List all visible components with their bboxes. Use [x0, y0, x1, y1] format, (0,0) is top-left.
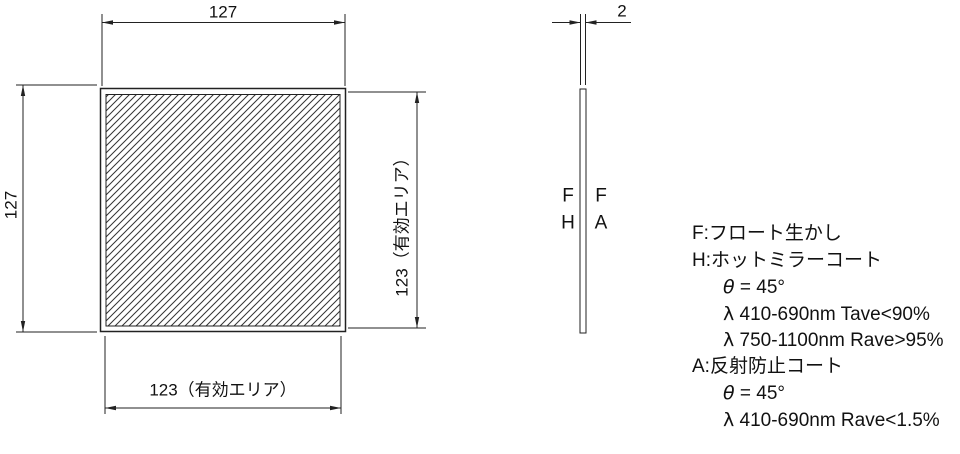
surface-label-hotmirror: H: [561, 214, 575, 233]
note-hotmirror-angle: θ = 45°: [692, 274, 944, 301]
dim-label-effective-height: 123（有効エリア）: [394, 149, 411, 296]
arrow-left-icon: [105, 406, 116, 410]
note-angle-value: = 45°: [735, 277, 785, 298]
dim-label-height: 127: [3, 191, 20, 219]
arrow-down-icon: [21, 321, 25, 332]
dim-bottom-effective-width: [105, 336, 341, 414]
technical-drawing-page: 127 127 123（有効エリア） 123（有効エリア） 2 F H F A …: [0, 0, 960, 454]
lambda-symbol: λ: [723, 409, 734, 431]
surface-label-antireflect: A: [595, 214, 608, 233]
surface-label-front-left: F: [562, 187, 574, 206]
arrow-right-icon: [570, 20, 581, 24]
arrow-up-icon: [415, 92, 419, 103]
theta-symbol: θ: [723, 382, 735, 404]
dim-top-width: [102, 14, 345, 86]
note-antireflect-angle: θ = 45°: [692, 380, 944, 407]
note-antireflect-rave: λ 410-690nm Rave<1.5%: [692, 407, 944, 434]
note-tave-value: 410-690nm Tave<90%: [734, 304, 930, 325]
glass-plate-section: [580, 89, 586, 333]
note-hotmirror-rave: λ 750-1100nm Rave>95%: [692, 327, 944, 354]
note-hotmirror-tave: λ 410-690nm Tave<90%: [692, 301, 944, 328]
dim-left-height: [16, 85, 97, 332]
note-float: F:フロート生かし: [692, 221, 944, 248]
arrow-left-icon: [586, 20, 597, 24]
arrow-down-icon: [415, 317, 419, 328]
dim-label-width: 127: [209, 4, 237, 21]
note-hotmirror: H:ホットミラーコート: [692, 248, 944, 275]
lambda-symbol: λ: [723, 329, 734, 351]
arrow-right-icon: [330, 406, 341, 410]
lambda-symbol: λ: [723, 303, 734, 325]
front-view: [16, 14, 426, 414]
dim-right-effective-height: [348, 92, 426, 328]
effective-area-hatch: [106, 95, 340, 327]
dim-thickness: [552, 14, 631, 85]
arrow-up-icon: [21, 85, 25, 96]
theta-symbol: θ: [723, 276, 735, 298]
dim-label-thickness: 2: [617, 3, 626, 20]
coating-notes: F:フロート生かし H:ホットミラーコート θ = 45° λ 410-690n…: [692, 221, 944, 433]
dim-label-effective-width: 123（有効エリア）: [149, 382, 296, 399]
note-antireflect: A:反射防止コート: [692, 354, 944, 381]
arrow-left-icon: [102, 20, 113, 24]
arrow-right-icon: [334, 20, 345, 24]
note-angle-value: = 45°: [735, 383, 785, 404]
note-ar-rave-value: 410-690nm Rave<1.5%: [734, 410, 939, 431]
side-view: [552, 14, 631, 333]
note-rave-value: 750-1100nm Rave>95%: [734, 330, 943, 351]
surface-label-front-right: F: [595, 187, 607, 206]
